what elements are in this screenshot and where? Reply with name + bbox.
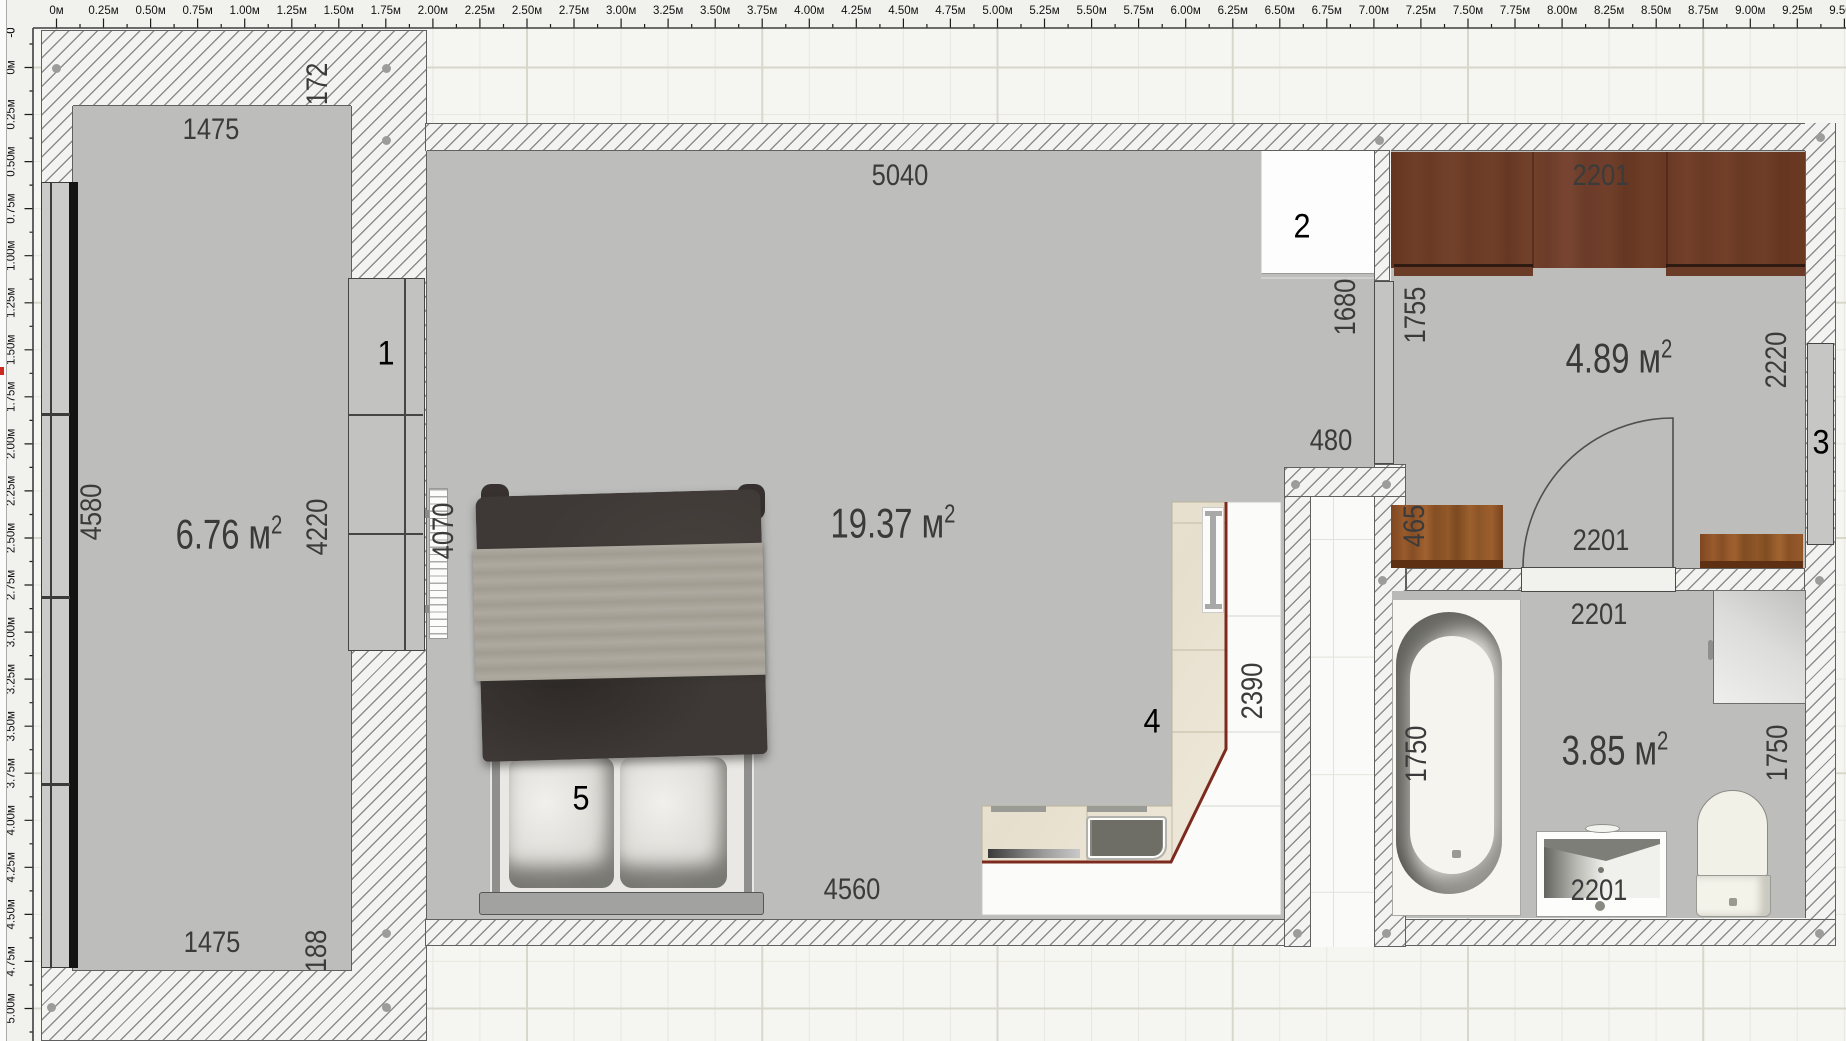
svg-text:0м: 0м: [49, 5, 63, 17]
svg-text:3.50м: 3.50м: [700, 5, 730, 17]
svg-text:1.00м: 1.00м: [230, 5, 260, 17]
svg-text:8.75м: 8.75м: [1688, 5, 1718, 17]
svg-text:1.75м: 1.75м: [6, 382, 18, 412]
svg-text:4.50м: 4.50м: [888, 5, 918, 17]
svg-text:6.75м: 6.75м: [1312, 5, 1342, 17]
svg-text:6.25м: 6.25м: [1218, 5, 1248, 17]
svg-text:2.50м: 2.50м: [512, 5, 542, 17]
svg-text:5.50м: 5.50м: [1076, 5, 1106, 17]
svg-text:6.00м: 6.00м: [1171, 5, 1201, 17]
svg-text:0м: 0м: [6, 60, 18, 74]
svg-text:4.75м: 4.75м: [6, 946, 18, 976]
svg-text:2.75м: 2.75м: [559, 5, 589, 17]
svg-text:8.25м: 8.25м: [1594, 5, 1624, 17]
svg-text:6.50м: 6.50м: [1265, 5, 1295, 17]
svg-text:7.75м: 7.75м: [1500, 5, 1530, 17]
svg-text:0.25м: 0.25м: [6, 99, 18, 129]
svg-text:3.75м: 3.75м: [747, 5, 777, 17]
svg-text:4.50м: 4.50м: [6, 899, 18, 929]
svg-text:8.50м: 8.50м: [1641, 5, 1671, 17]
svg-text:4.00м: 4.00м: [794, 5, 824, 17]
svg-text:0.50м: 0.50м: [135, 5, 165, 17]
svg-text:7.00м: 7.00м: [1359, 5, 1389, 17]
svg-text:9.00м: 9.00м: [1735, 5, 1765, 17]
svg-text:4.25м: 4.25м: [841, 5, 871, 17]
svg-text:1.25м: 1.25м: [6, 288, 18, 318]
svg-text:7.50м: 7.50м: [1453, 5, 1483, 17]
svg-text:4.25м: 4.25м: [6, 852, 18, 882]
svg-text:1.25м: 1.25м: [277, 5, 307, 17]
svg-text:2.00м: 2.00м: [6, 429, 18, 459]
svg-text:4.75м: 4.75м: [935, 5, 965, 17]
svg-text:3.25м: 3.25м: [6, 664, 18, 694]
svg-text:3.50м: 3.50м: [6, 711, 18, 741]
svg-text:3.75м: 3.75м: [6, 758, 18, 788]
svg-text:8.00м: 8.00м: [1547, 5, 1577, 17]
svg-text:3.00м: 3.00м: [6, 617, 18, 647]
svg-text:1.50м: 1.50м: [324, 5, 354, 17]
svg-text:3.25м: 3.25м: [653, 5, 683, 17]
svg-text:9.25м: 9.25м: [1782, 5, 1812, 17]
svg-text:7.25м: 7.25м: [1406, 5, 1436, 17]
svg-text:1.00м: 1.00м: [6, 240, 18, 270]
svg-text:5.00м: 5.00м: [6, 993, 18, 1023]
svg-text:5.25м: 5.25м: [1029, 5, 1059, 17]
svg-text:0.50м: 0.50м: [6, 146, 18, 176]
svg-text:5.75м: 5.75м: [1123, 5, 1153, 17]
svg-text:2.50м: 2.50м: [6, 523, 18, 553]
svg-text:1.75м: 1.75м: [371, 5, 401, 17]
svg-text:5.00м: 5.00м: [982, 5, 1012, 17]
svg-text:9.50м: 9.50м: [1829, 5, 1846, 17]
svg-text:2.25м: 2.25м: [465, 5, 495, 17]
svg-text:0.75м: 0.75м: [6, 193, 18, 223]
svg-text:0.25м: 0.25м: [88, 5, 118, 17]
svg-text:2.25м: 2.25м: [6, 476, 18, 506]
svg-text:2.75м: 2.75м: [6, 570, 18, 600]
svg-text:4.00м: 4.00м: [6, 805, 18, 835]
svg-text:1.50м: 1.50м: [6, 335, 18, 365]
svg-text:3.00м: 3.00м: [606, 5, 636, 17]
svg-text:2.00м: 2.00м: [418, 5, 448, 17]
svg-text:0.75м: 0.75м: [182, 5, 212, 17]
